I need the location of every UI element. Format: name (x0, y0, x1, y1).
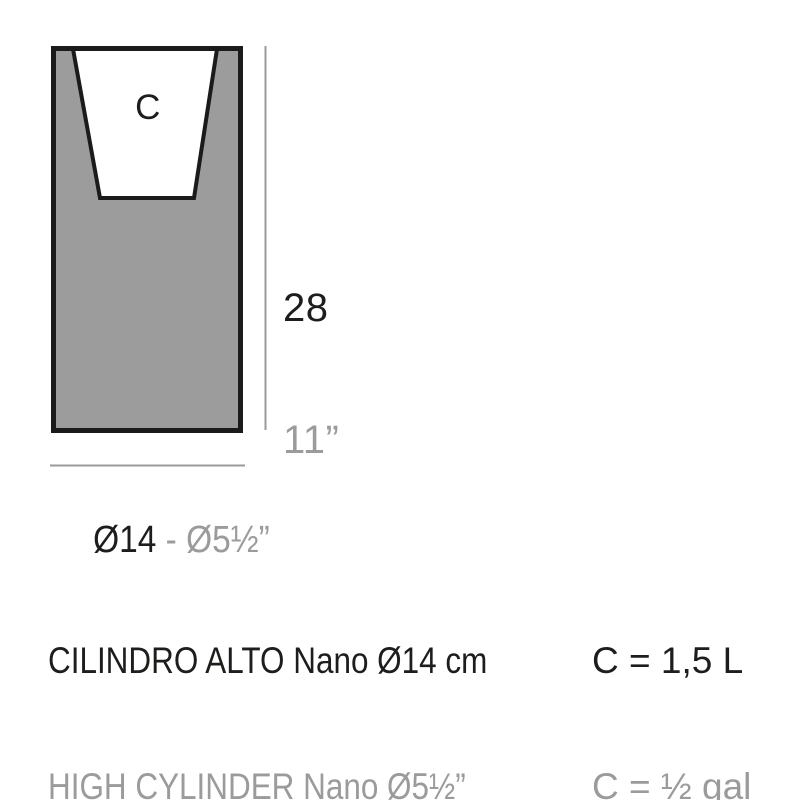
product-name-metric: CILINDRO ALTO Nano Ø14 cm (48, 640, 487, 682)
height-dimension-labels: 28 11” (283, 198, 339, 550)
capacity-metric: C = 1,5 L (592, 640, 751, 682)
product-name-imperial: HIGH CYLINDER Nano Ø5½” (48, 766, 487, 800)
capacity-labels: C = 1,5 L C = ½ gal (592, 556, 751, 800)
product-names: CILINDRO ALTO Nano Ø14 cm HIGH CYLINDER … (48, 556, 565, 800)
height-metric-value: 28 (283, 286, 339, 330)
capacity-imperial: C = ½ gal (592, 766, 751, 800)
diameter-imperial-value: Ø5½” (186, 519, 270, 561)
product-spec-sheet: C 28 11” Ø14 - Ø5½” CILINDRO ALTO Nano Ø… (0, 0, 800, 800)
diameter-metric-value: Ø14 (93, 519, 156, 561)
height-imperial-value: 11” (283, 418, 339, 462)
cavity-capacity-label: C (131, 90, 165, 125)
diameter-separator: - (156, 519, 186, 561)
